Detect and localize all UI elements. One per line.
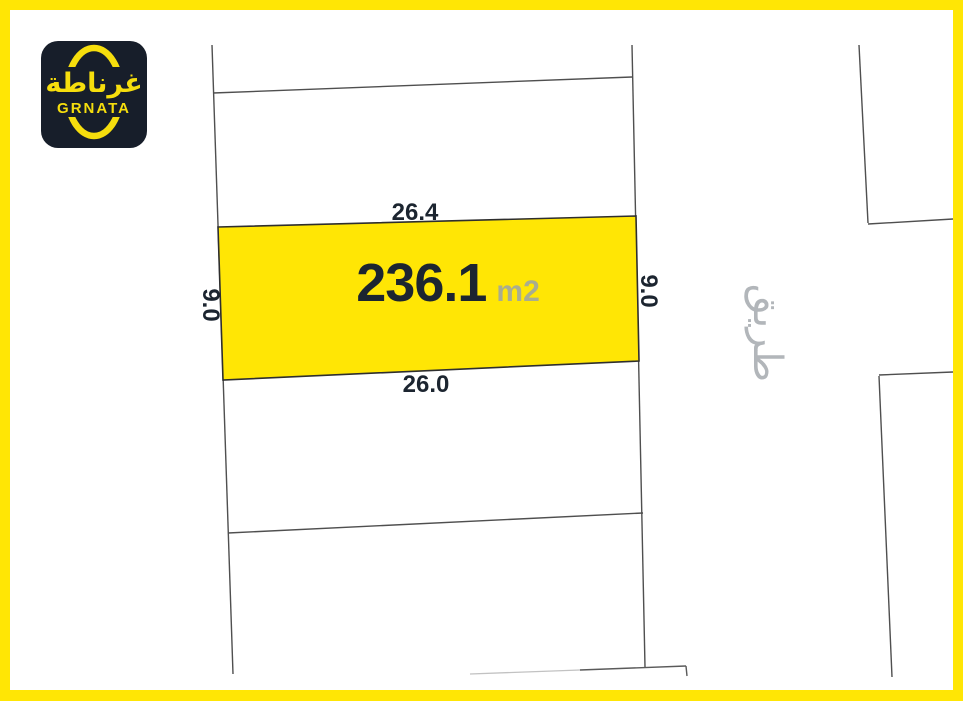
grnata-logo: غرناطة GRNATA bbox=[41, 41, 147, 148]
plot-divider-upper bbox=[213, 77, 632, 93]
dimension-left-label: 9.0 bbox=[196, 245, 224, 365]
street-line-bottom-faded bbox=[470, 670, 580, 674]
area-unit: m2 bbox=[496, 275, 539, 309]
far-parcel-lower-horizontal bbox=[879, 372, 953, 375]
plot-map-canvas: 26.4 26.0 9.0 9.0 236.1 m2 طريق غرناطة G… bbox=[0, 0, 963, 701]
far-parcel-upper-vertical bbox=[859, 45, 868, 223]
street-line-bottom-tick bbox=[686, 666, 687, 676]
far-parcel-upper-horizontal bbox=[868, 219, 953, 224]
area-label: 236.1 m2 bbox=[288, 252, 608, 322]
logo-arabic-wordmark: غرناطة bbox=[41, 67, 147, 101]
area-value: 236.1 bbox=[356, 252, 486, 314]
road-label: طريق bbox=[744, 253, 790, 413]
dimension-right-label: 9.0 bbox=[634, 231, 662, 351]
dimension-top-label: 26.4 bbox=[355, 199, 475, 227]
logo-latin-wordmark: GRNATA bbox=[41, 101, 147, 117]
far-parcel-lower-vertical bbox=[879, 376, 892, 677]
dimension-bottom-label: 26.0 bbox=[366, 371, 486, 399]
plot-divider-lower bbox=[228, 513, 643, 533]
street-line-bottom bbox=[580, 666, 686, 670]
